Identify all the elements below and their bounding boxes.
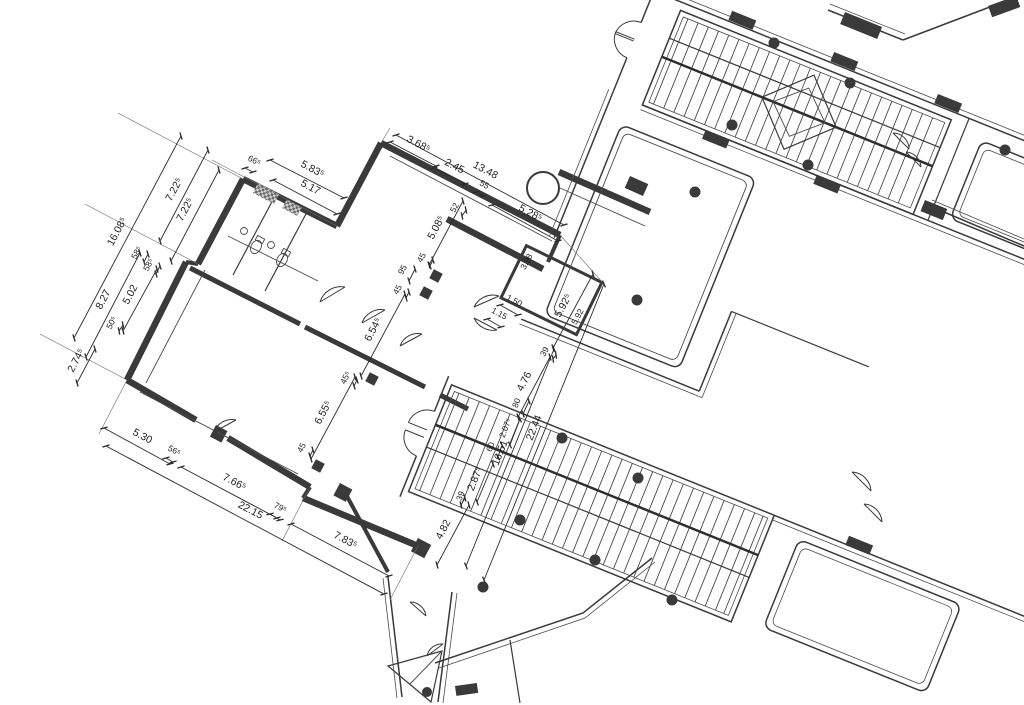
- column-round: [633, 473, 644, 484]
- column-round: [690, 187, 701, 198]
- column-round: [515, 515, 526, 526]
- column-round: [478, 582, 489, 593]
- floor-plan-canvas: 66⁵ 5.83⁵ 5.17 7.22⁵ 7.22⁵ 16.08⁵ 58⁵ 58…: [0, 0, 1024, 705]
- column-round: [845, 78, 856, 89]
- column-round: [632, 295, 643, 306]
- column-round: [769, 38, 780, 49]
- paper-background: [0, 0, 1024, 705]
- column-round: [667, 595, 678, 606]
- column-round: [422, 687, 432, 697]
- column-round: [727, 120, 738, 131]
- column-round: [803, 160, 814, 171]
- floor-plan-page: 66⁵ 5.83⁵ 5.17 7.22⁵ 7.22⁵ 16.08⁵ 58⁵ 58…: [0, 0, 1024, 705]
- column-round: [557, 433, 568, 444]
- column-round: [590, 555, 601, 566]
- column-round: [1000, 145, 1011, 156]
